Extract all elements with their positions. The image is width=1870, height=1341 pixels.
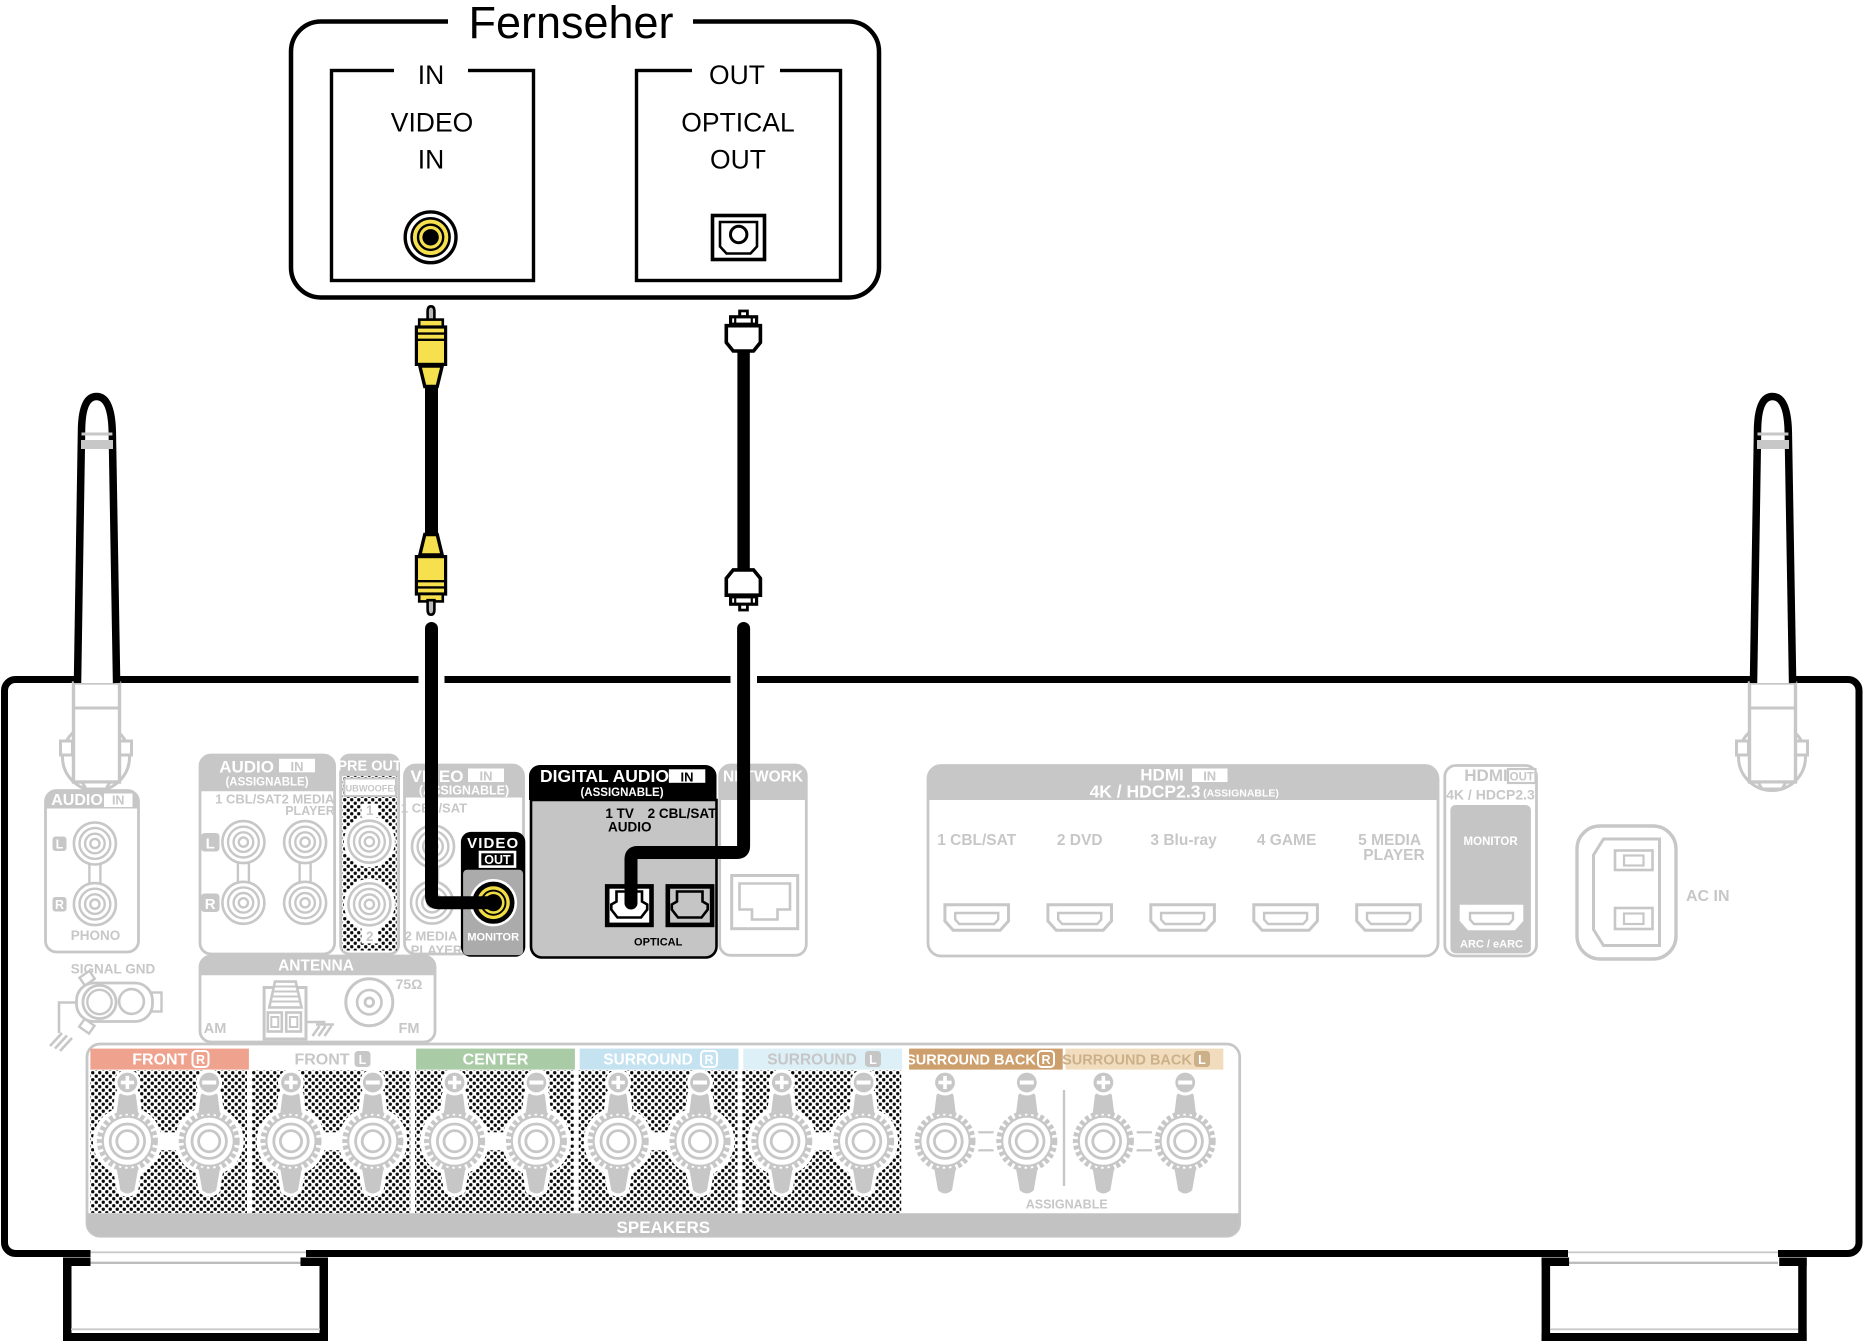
svg-text:SURROUND BACK: SURROUND BACK	[906, 1053, 1036, 1069]
svg-text:VIDEO: VIDEO	[391, 108, 473, 138]
svg-text:IN: IN	[1203, 768, 1216, 783]
svg-text:VIDEO: VIDEO	[467, 835, 519, 852]
svg-text:1 CBL/SAT: 1 CBL/SAT	[215, 792, 281, 807]
svg-text:AUDIO: AUDIO	[51, 792, 103, 809]
svg-text:2: 2	[366, 929, 374, 944]
svg-text:(ASSIGNABLE): (ASSIGNABLE)	[1203, 788, 1279, 800]
svg-text:L: L	[206, 836, 215, 853]
svg-text:IN: IN	[480, 769, 493, 784]
svg-text:IN: IN	[112, 794, 125, 808]
svg-text:R: R	[205, 896, 216, 913]
svg-text:1 CBL/SAT: 1 CBL/SAT	[937, 832, 1016, 849]
svg-text:AC IN: AC IN	[1686, 888, 1730, 905]
svg-text:L: L	[359, 1053, 367, 1067]
svg-text:IN: IN	[291, 759, 304, 774]
svg-text:R: R	[1041, 1053, 1050, 1067]
svg-text:DIGITAL AUDIO: DIGITAL AUDIO	[540, 766, 669, 786]
svg-text:MONITOR: MONITOR	[467, 932, 519, 944]
svg-text:Fernseher: Fernseher	[468, 0, 673, 48]
svg-text:2 CBL/SAT: 2 CBL/SAT	[648, 806, 718, 821]
svg-text:R: R	[55, 898, 64, 912]
svg-text:PLAYER: PLAYER	[411, 943, 463, 958]
svg-text:FRONT: FRONT	[132, 1052, 187, 1069]
svg-text:4K / HDCP2.3: 4K / HDCP2.3	[1446, 787, 1535, 803]
svg-text:SUBWOOFER: SUBWOOFER	[339, 784, 400, 794]
svg-text:FRONT: FRONT	[294, 1052, 349, 1069]
svg-text:2 MEDIA: 2 MEDIA	[405, 929, 458, 944]
svg-text:PRE OUT: PRE OUT	[337, 759, 402, 775]
svg-text:OUT: OUT	[484, 853, 511, 867]
svg-text:75Ω: 75Ω	[396, 976, 423, 992]
svg-text:IN: IN	[681, 769, 694, 784]
svg-text:ANTENNA: ANTENNA	[278, 958, 354, 975]
svg-text:4K / HDCP2.3: 4K / HDCP2.3	[1090, 782, 1201, 802]
svg-text:CENTER: CENTER	[463, 1052, 529, 1069]
svg-text:SPEAKERS: SPEAKERS	[617, 1218, 711, 1237]
svg-text:AUDIO: AUDIO	[219, 758, 274, 777]
svg-text:ARC / eARC: ARC / eARC	[1460, 939, 1523, 951]
svg-text:OPTICAL: OPTICAL	[681, 108, 794, 138]
svg-text:AUDIO: AUDIO	[608, 820, 652, 835]
svg-text:PHONO: PHONO	[71, 928, 121, 943]
svg-text:OPTICAL: OPTICAL	[634, 937, 683, 949]
svg-text:L: L	[56, 838, 64, 852]
svg-text:IN: IN	[418, 60, 445, 90]
svg-text:(ASSIGNABLE): (ASSIGNABLE)	[580, 787, 663, 799]
svg-text:SURROUND BACK: SURROUND BACK	[1062, 1053, 1192, 1069]
svg-text:(ASSIGNABLE): (ASSIGNABLE)	[225, 777, 308, 789]
svg-text:OUT: OUT	[709, 60, 765, 90]
svg-text:SURROUND: SURROUND	[603, 1052, 693, 1069]
svg-text:PLAYER: PLAYER	[1363, 847, 1424, 864]
svg-text:OUT: OUT	[710, 145, 766, 175]
svg-text:R: R	[196, 1053, 205, 1067]
svg-text:L: L	[1198, 1053, 1206, 1067]
svg-text:MONITOR: MONITOR	[1464, 836, 1519, 848]
svg-text:ASSIGNABLE: ASSIGNABLE	[1026, 1198, 1108, 1212]
svg-text:OUT: OUT	[1510, 772, 1534, 784]
svg-text:SURROUND: SURROUND	[767, 1052, 857, 1069]
svg-text:L: L	[869, 1053, 877, 1067]
svg-text:3 Blu-ray: 3 Blu-ray	[1150, 832, 1217, 849]
svg-text:4 GAME: 4 GAME	[1257, 832, 1316, 849]
svg-text:HDMI: HDMI	[1464, 766, 1507, 785]
svg-text:AM: AM	[204, 1021, 227, 1037]
svg-text:NETWORK: NETWORK	[723, 769, 804, 786]
svg-text:R: R	[704, 1053, 713, 1067]
svg-text:FM: FM	[399, 1021, 420, 1037]
svg-text:2 DVD: 2 DVD	[1057, 832, 1103, 849]
svg-text:IN: IN	[418, 145, 445, 175]
svg-text:1: 1	[366, 803, 374, 818]
svg-text:PLAYER: PLAYER	[285, 804, 335, 818]
